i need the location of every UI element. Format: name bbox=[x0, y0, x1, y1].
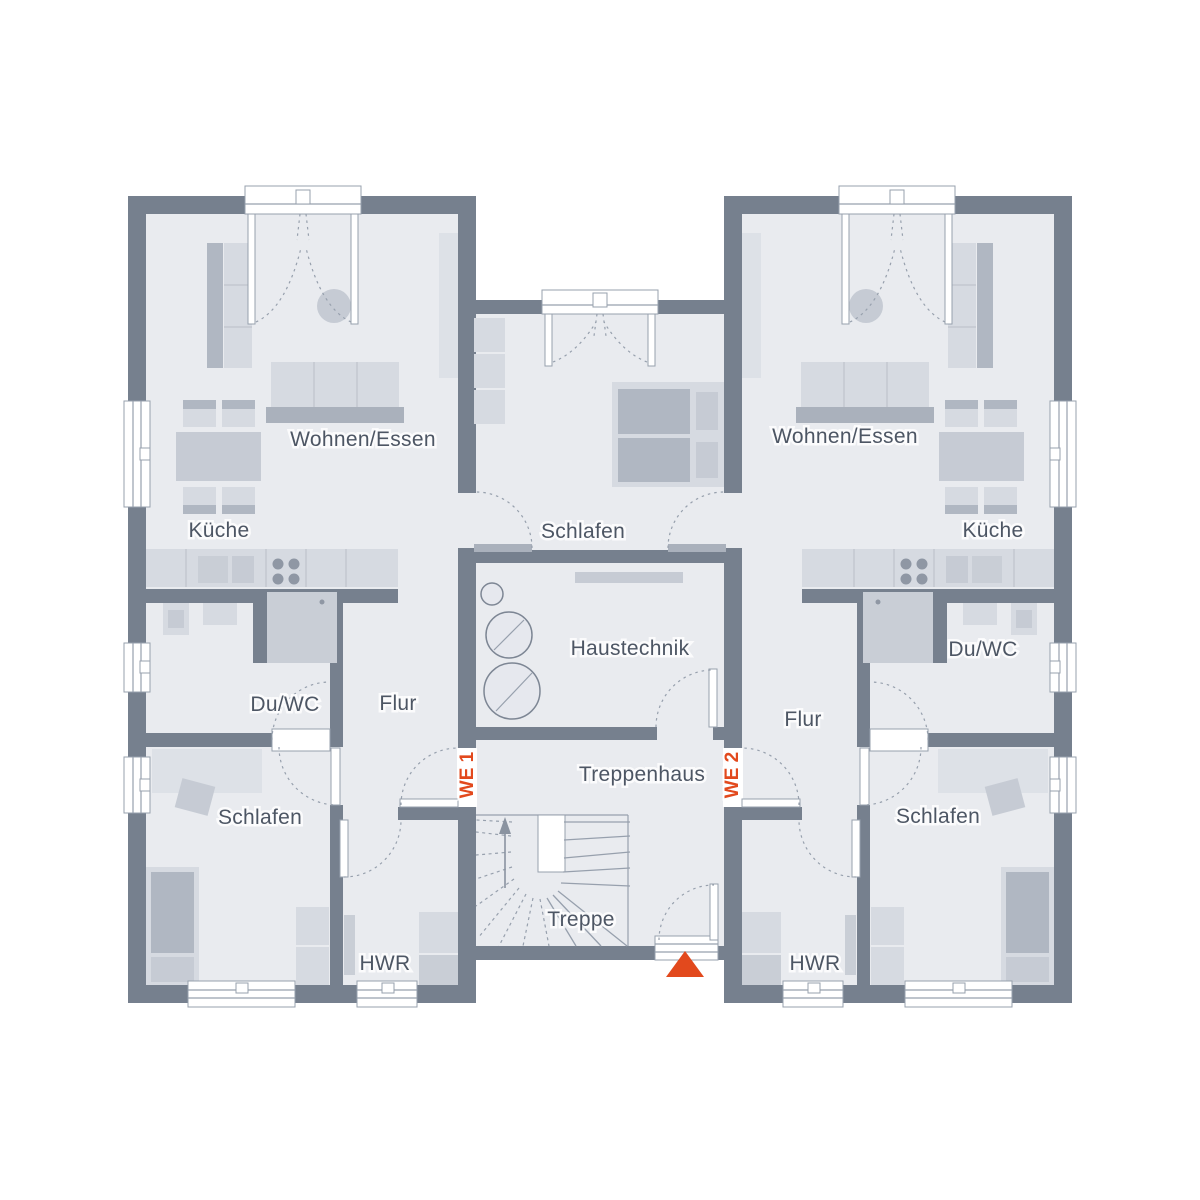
window bbox=[1050, 757, 1076, 813]
window bbox=[124, 643, 150, 692]
wardrobe bbox=[871, 947, 904, 985]
window bbox=[124, 401, 150, 507]
label-hwr-we1: HWR bbox=[359, 952, 410, 975]
double-bed bbox=[612, 382, 724, 487]
label-flur-we1: Flur bbox=[379, 692, 416, 715]
label-kueche-we1: Küche bbox=[188, 519, 249, 542]
label-treppe: Treppe bbox=[547, 908, 615, 931]
wardrobe bbox=[474, 318, 505, 352]
washer bbox=[742, 912, 781, 953]
side-table bbox=[317, 289, 351, 323]
kitchen-sink bbox=[198, 556, 228, 583]
label-schlafen-core: Schlafen bbox=[541, 520, 625, 543]
wardrobe bbox=[474, 390, 505, 424]
window bbox=[1050, 643, 1076, 692]
label-flur-we2: Flur bbox=[784, 708, 821, 731]
floor-plan: Wohnen/Essen Küche Du/WC Flur Schlafen H… bbox=[0, 0, 1200, 1200]
label-schlafen-we1: Schlafen bbox=[218, 806, 302, 829]
washbasin bbox=[203, 603, 237, 625]
tank bbox=[484, 663, 540, 719]
shelf-unit bbox=[207, 243, 223, 368]
washer bbox=[419, 912, 458, 953]
washbasin bbox=[963, 603, 997, 625]
dryer bbox=[419, 955, 458, 985]
window bbox=[1050, 401, 1076, 507]
label-hwr-we2: HWR bbox=[789, 952, 840, 975]
label-schlafen-we2: Schlafen bbox=[896, 805, 980, 828]
wardrobe bbox=[296, 907, 329, 945]
window bbox=[357, 981, 417, 1007]
boiler bbox=[481, 583, 503, 605]
window bbox=[124, 757, 150, 813]
label-unit-we1: WE 1 bbox=[457, 751, 478, 798]
window bbox=[905, 981, 1012, 1007]
label-haustechnik: Haustechnik bbox=[571, 637, 690, 660]
window bbox=[783, 981, 843, 1007]
wardrobe bbox=[474, 354, 505, 388]
sideboard bbox=[439, 233, 458, 378]
sofa bbox=[266, 362, 404, 423]
shower bbox=[863, 592, 933, 663]
sideboard bbox=[742, 233, 761, 378]
stair-void bbox=[538, 815, 565, 872]
floor-plan-page: Wohnen/Essen Küche Du/WC Flur Schlafen H… bbox=[0, 0, 1200, 1200]
label-duwc-we1: Du/WC bbox=[250, 693, 319, 716]
label-duwc-we2: Du/WC bbox=[948, 638, 1017, 661]
label-wohnen-essen-we1: Wohnen/Essen bbox=[290, 428, 436, 451]
wardrobe bbox=[296, 947, 329, 985]
kitchen-sink bbox=[972, 556, 1002, 583]
label-unit-we2: WE 2 bbox=[722, 752, 743, 798]
window bbox=[188, 981, 295, 1007]
label-kueche-we2: Küche bbox=[962, 519, 1023, 542]
wardrobe bbox=[871, 907, 904, 945]
sofa bbox=[796, 362, 934, 423]
kitchen-counter bbox=[146, 549, 398, 587]
label-wohnen-essen-we2: Wohnen/Essen bbox=[772, 425, 918, 448]
label-treppenhaus: Treppenhaus bbox=[579, 763, 705, 786]
dryer bbox=[742, 955, 781, 985]
shower bbox=[267, 592, 337, 663]
shelf-unit bbox=[977, 243, 993, 368]
shelf bbox=[575, 572, 683, 583]
kitchen-counter bbox=[802, 549, 1054, 587]
